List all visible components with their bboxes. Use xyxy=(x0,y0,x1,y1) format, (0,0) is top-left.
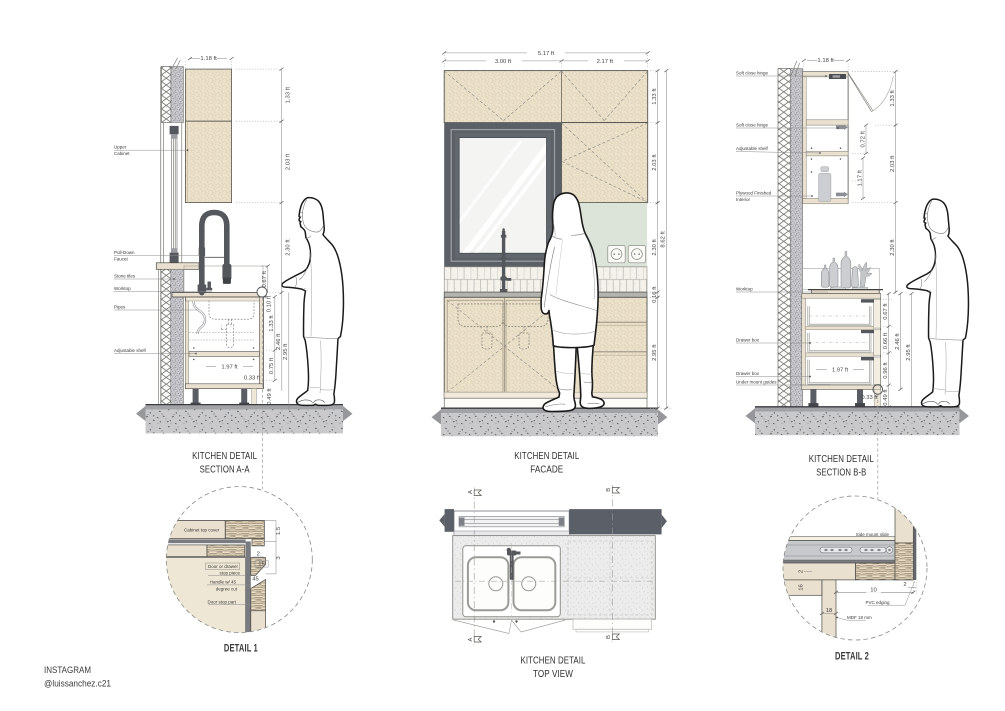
svg-text:0.66 ft: 0.66 ft xyxy=(883,332,889,349)
svg-text:SECTION A-A: SECTION A-A xyxy=(200,465,250,476)
svg-text:Plywood Finished: Plywood Finished xyxy=(736,191,772,196)
svg-text:1.97 ft: 1.97 ft xyxy=(832,367,849,373)
svg-text:1.33 ft: 1.33 ft xyxy=(890,90,896,107)
svg-text:2.17 ft: 2.17 ft xyxy=(597,59,614,65)
svg-text:2.95 ft: 2.95 ft xyxy=(906,344,912,361)
svg-text:A: A xyxy=(468,490,474,494)
svg-text:DETAIL 1: DETAIL 1 xyxy=(224,642,258,654)
svg-text:Handle w/ 45: Handle w/ 45 xyxy=(210,580,237,585)
svg-text:0.33 ft: 0.33 ft xyxy=(244,376,261,382)
svg-text:Cabinet top cover: Cabinet top cover xyxy=(184,528,220,533)
svg-text:2.30 ft: 2.30 ft xyxy=(285,239,291,256)
svg-text:B: B xyxy=(606,488,612,492)
svg-text:1.17 ft: 1.17 ft xyxy=(857,170,863,187)
svg-text:5.17 ft: 5.17 ft xyxy=(538,51,555,57)
svg-text:MDF 18 mm: MDF 18 mm xyxy=(847,615,872,620)
svg-text:Worktop: Worktop xyxy=(736,287,753,292)
svg-text:PVC edging: PVC edging xyxy=(865,600,890,605)
svg-text:INSTAGRAM: INSTAGRAM xyxy=(44,665,91,675)
svg-text:45: 45 xyxy=(252,577,259,583)
svg-text:Cabinet: Cabinet xyxy=(114,151,130,156)
svg-text:1.33 ft: 1.33 ft xyxy=(269,315,275,332)
svg-text:KITCHEN DETAIL: KITCHEN DETAIL xyxy=(521,656,586,667)
svg-text:Door stop part: Door stop part xyxy=(207,599,236,604)
svg-text:16: 16 xyxy=(799,584,805,591)
svg-text:stop piece: stop piece xyxy=(219,571,240,576)
svg-text:10: 10 xyxy=(870,588,877,594)
svg-text:0.49 ft: 0.49 ft xyxy=(883,389,889,406)
svg-text:1.97 ft: 1.97 ft xyxy=(221,364,238,370)
svg-text:DETAIL 2: DETAIL 2 xyxy=(835,650,869,662)
svg-text:KITCHEN DETAIL: KITCHEN DETAIL xyxy=(809,454,874,465)
svg-text:1.33 ft: 1.33 ft xyxy=(652,88,658,105)
svg-text:2.03 ft: 2.03 ft xyxy=(285,153,291,170)
svg-text:Side mount slide: Side mount slide xyxy=(856,532,890,537)
svg-text:TOP VIEW: TOP VIEW xyxy=(533,669,574,680)
svg-text:Soft close hinge: Soft close hinge xyxy=(736,71,769,76)
svg-text:FACADE: FACADE xyxy=(530,465,563,476)
svg-text:SECTION B-B: SECTION B-B xyxy=(816,468,866,479)
svg-text:KITCHEN DETAIL: KITCHEN DETAIL xyxy=(192,451,257,462)
svg-text:Under mount guides: Under mount guides xyxy=(736,380,777,385)
svg-text:8.62 ft: 8.62 ft xyxy=(661,231,667,248)
svg-text:A: A xyxy=(468,637,474,641)
svg-text:0.72 ft: 0.72 ft xyxy=(860,131,866,148)
svg-text:2.30 ft: 2.30 ft xyxy=(652,239,658,256)
svg-text:1.5: 1.5 xyxy=(276,526,282,535)
svg-text:Adjustable shelf: Adjustable shelf xyxy=(114,348,147,353)
svg-text:Upper: Upper xyxy=(114,145,127,150)
svg-text:2: 2 xyxy=(903,582,906,588)
svg-text:Pipes: Pipes xyxy=(114,305,126,310)
svg-text:Pull-Down: Pull-Down xyxy=(114,250,135,255)
svg-text:2.46 ft: 2.46 ft xyxy=(895,333,901,350)
svg-text:KITCHEN DETAIL: KITCHEN DETAIL xyxy=(514,451,579,462)
svg-text:1.33 ft: 1.33 ft xyxy=(285,87,291,104)
svg-text:18: 18 xyxy=(826,608,833,614)
svg-text:0.10 ft: 0.10 ft xyxy=(267,295,273,312)
svg-text:Drawer box: Drawer box xyxy=(736,338,760,343)
svg-text:2.95 ft: 2.95 ft xyxy=(283,343,289,360)
svg-text:B: B xyxy=(606,635,612,639)
svg-text:2.46 ft: 2.46 ft xyxy=(276,333,282,350)
svg-text:2.30 ft: 2.30 ft xyxy=(890,239,896,256)
svg-text:Drawer box: Drawer box xyxy=(736,371,760,376)
svg-text:Adjustable shelf: Adjustable shelf xyxy=(736,146,769,151)
svg-text:0.67 ft: 0.67 ft xyxy=(262,271,268,288)
svg-text:2.95 ft: 2.95 ft xyxy=(652,344,658,361)
svg-text:1.18 ft: 1.18 ft xyxy=(817,58,834,64)
svg-text:2.03 ft: 2.03 ft xyxy=(890,155,896,172)
svg-text:0.67 ft: 0.67 ft xyxy=(883,303,889,320)
svg-text:0.33 ft: 0.33 ft xyxy=(861,395,878,401)
svg-text:Soft close hinge: Soft close hinge xyxy=(736,123,769,128)
svg-text:Door or drawer: Door or drawer xyxy=(208,564,239,569)
svg-text:@luissanchez.c21: @luissanchez.c21 xyxy=(44,679,111,689)
svg-text:Worktop: Worktop xyxy=(114,286,131,291)
svg-text:2: 2 xyxy=(799,570,805,573)
svg-text:3.00 ft: 3.00 ft xyxy=(495,59,512,65)
svg-text:Interior: Interior xyxy=(736,197,751,202)
svg-text:2.03 ft: 2.03 ft xyxy=(652,154,658,171)
svg-text:Stone tiles: Stone tiles xyxy=(114,274,136,279)
svg-text:2: 2 xyxy=(257,552,260,558)
svg-text:1.18 ft: 1.18 ft xyxy=(200,56,217,62)
svg-text:Faucet: Faucet xyxy=(114,257,129,262)
svg-text:0.96 ft: 0.96 ft xyxy=(883,362,889,379)
svg-text:0.75 ft: 0.75 ft xyxy=(269,357,275,374)
svg-text:0.49 ft: 0.49 ft xyxy=(267,388,273,405)
svg-text:degree cut: degree cut xyxy=(216,587,238,592)
svg-text:0.16 ft: 0.16 ft xyxy=(652,286,658,303)
svg-text:15: 15 xyxy=(258,562,265,568)
